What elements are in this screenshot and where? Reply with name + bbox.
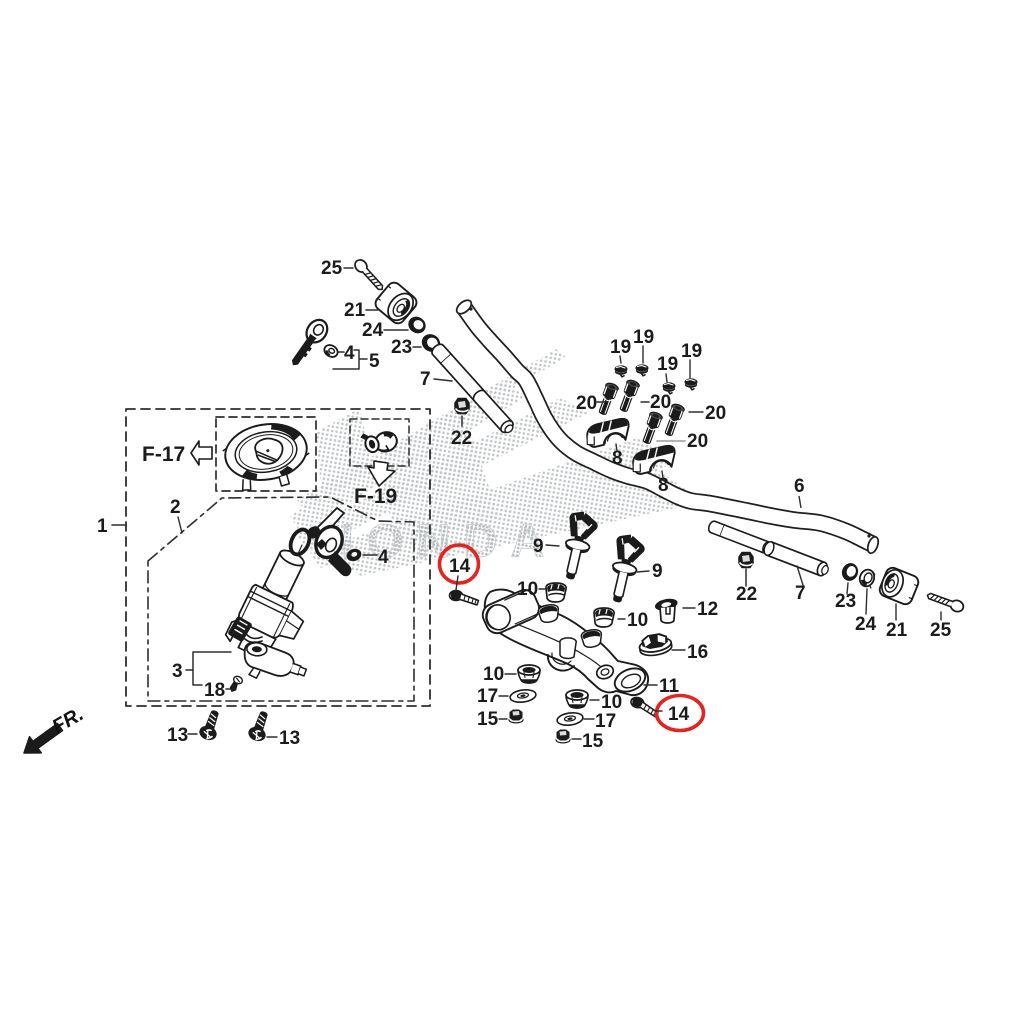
- svg-text:F-17: F-17: [142, 443, 185, 466]
- svg-text:2: 2: [170, 497, 181, 518]
- svg-text:15: 15: [477, 709, 499, 730]
- svg-text:20: 20: [705, 403, 726, 424]
- svg-text:24: 24: [855, 614, 877, 635]
- svg-text:19: 19: [657, 354, 678, 375]
- svg-text:21: 21: [886, 620, 908, 641]
- svg-text:4: 4: [378, 547, 389, 568]
- svg-text:10: 10: [627, 610, 648, 631]
- svg-text:16: 16: [687, 642, 708, 663]
- svg-text:22: 22: [736, 584, 757, 605]
- svg-text:21: 21: [344, 300, 366, 321]
- svg-text:7: 7: [420, 369, 431, 390]
- svg-text:F-19: F-19: [354, 485, 397, 508]
- svg-text:9: 9: [652, 561, 663, 582]
- svg-text:7: 7: [795, 583, 806, 604]
- svg-text:17: 17: [595, 711, 616, 732]
- svg-text:25: 25: [321, 258, 343, 279]
- svg-text:18: 18: [204, 680, 225, 701]
- svg-text:20: 20: [687, 431, 708, 452]
- svg-text:19: 19: [610, 337, 631, 358]
- svg-text:4: 4: [344, 343, 355, 364]
- svg-text:6: 6: [794, 476, 805, 497]
- svg-text:14: 14: [668, 704, 690, 725]
- svg-text:15: 15: [582, 731, 604, 752]
- svg-text:24: 24: [362, 320, 384, 341]
- svg-text:13: 13: [279, 728, 300, 749]
- svg-text:14: 14: [449, 556, 471, 577]
- svg-text:23: 23: [835, 591, 856, 612]
- svg-text:19: 19: [633, 327, 654, 348]
- svg-text:10: 10: [517, 579, 538, 600]
- svg-text:5: 5: [369, 351, 380, 372]
- svg-text:11: 11: [659, 676, 680, 697]
- svg-text:1: 1: [97, 516, 108, 537]
- svg-text:20: 20: [650, 392, 671, 413]
- svg-text:20: 20: [576, 393, 597, 414]
- svg-text:12: 12: [697, 599, 718, 620]
- svg-text:17: 17: [477, 686, 498, 707]
- svg-text:10: 10: [601, 692, 622, 713]
- svg-text:10: 10: [483, 664, 504, 685]
- svg-text:19: 19: [681, 341, 702, 362]
- svg-text:25: 25: [930, 620, 952, 641]
- svg-text:13: 13: [167, 725, 188, 746]
- svg-text:22: 22: [451, 428, 472, 449]
- svg-text:9: 9: [533, 536, 544, 557]
- svg-text:3: 3: [172, 661, 183, 682]
- svg-text:23: 23: [391, 337, 412, 358]
